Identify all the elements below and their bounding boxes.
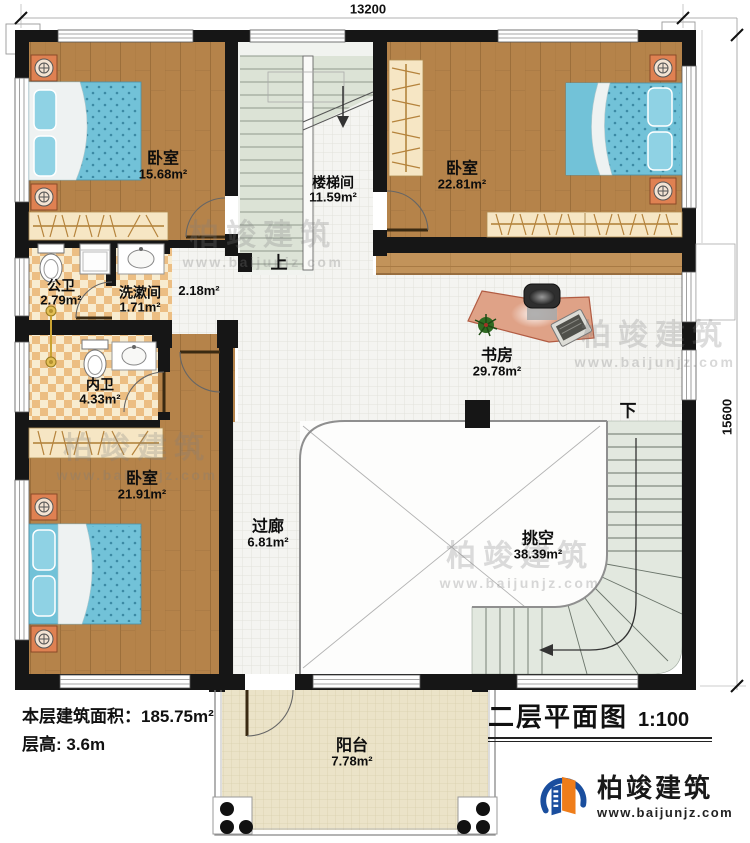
- window: [58, 30, 193, 42]
- floor-area-text: 本层建筑面积：185.75m²: [22, 702, 214, 727]
- room-name: 阳台: [331, 737, 372, 754]
- window: [682, 272, 696, 322]
- room-label-bedroom-top-left: 卧室 15.68m²: [139, 150, 187, 181]
- window: [313, 675, 420, 688]
- brand-logo: 柏竣建筑 www.baijunjz.com: [540, 770, 733, 824]
- window: [15, 480, 29, 640]
- stair-down-label: 下: [620, 397, 637, 422]
- stair-up-label: 上: [271, 249, 288, 274]
- window: [682, 66, 696, 208]
- room-area: 21.91m²: [118, 488, 166, 502]
- window: [60, 675, 190, 688]
- room-name: 洗漱间: [119, 285, 161, 300]
- room-label-balcony: 阳台 7.78m²: [331, 737, 372, 768]
- room-name: 内卫: [79, 377, 120, 392]
- window: [15, 258, 29, 316]
- page-title: 二层平面图: [488, 697, 628, 734]
- room-label-wash-room: 洗漱间 1.71m²: [119, 285, 161, 314]
- room-label-void: 挑空 38.39m²: [514, 530, 562, 561]
- room-area: 2.79m²: [40, 294, 81, 308]
- toilet: [84, 350, 106, 378]
- room-name: 楼梯间: [309, 175, 357, 190]
- title-underline: [488, 741, 712, 742]
- room-area: 38.39m²: [514, 548, 562, 562]
- sink: [128, 250, 154, 268]
- fixtures-wash-room: [118, 244, 164, 274]
- room-area: 6.81m²: [247, 536, 288, 550]
- room-label-hall: 2.18m²: [178, 284, 219, 298]
- window: [250, 30, 345, 42]
- dimension-right: 15600: [720, 399, 735, 435]
- washing-machine: [80, 244, 110, 274]
- floor-study: [238, 275, 682, 421]
- window: [15, 78, 29, 202]
- room-label-stairwell: 楼梯间 11.59m²: [309, 175, 357, 204]
- balcony-door-opening: [245, 674, 295, 690]
- room-name: 公卫: [40, 278, 81, 293]
- brand-name: 柏竣建筑: [597, 775, 733, 801]
- room-area: 4.33m²: [79, 393, 120, 407]
- room-area: 29.78m²: [473, 365, 521, 379]
- exterior-ledge: [696, 244, 735, 320]
- room-label-private-bath: 内卫 4.33m²: [79, 377, 120, 406]
- room-name: 过廊: [247, 518, 288, 535]
- room-label-corridor: 过廊 6.81m²: [247, 518, 288, 549]
- room-area: 7.78m²: [331, 755, 372, 769]
- floor-height-text: 层高: 3.6m: [22, 730, 105, 755]
- room-area: 11.59m²: [309, 191, 357, 205]
- drawing-scale: 1:100: [638, 709, 689, 732]
- room-name: 书房: [473, 347, 521, 364]
- room-label-bedroom-bottom: 卧室 21.91m²: [118, 470, 166, 501]
- floorplan-page: 卧室 15.68m² 楼梯间 11.59m² 卧室 22.81m² 公卫 2.7…: [0, 0, 750, 843]
- room-area: 15.68m²: [139, 168, 187, 182]
- room-name: 卧室: [118, 470, 166, 487]
- room-area: 2.18m²: [178, 284, 219, 298]
- room-area: 1.71m²: [119, 301, 161, 315]
- floor-hall-strip: [376, 253, 682, 275]
- room-name: 卧室: [438, 160, 486, 177]
- dimension-top: 13200: [350, 2, 386, 17]
- window: [682, 350, 696, 400]
- brand-website: www.baijunjz.com: [597, 805, 733, 820]
- sink: [122, 347, 146, 365]
- title-block: 二层平面图 1:100: [488, 697, 712, 742]
- room-area: 22.81m²: [438, 178, 486, 192]
- room-label-public-bath: 公卫 2.79m²: [40, 278, 81, 307]
- brand-logo-icon: [540, 770, 588, 824]
- room-name: 卧室: [139, 150, 187, 167]
- room-label-bedroom-top-right: 卧室 22.81m²: [438, 160, 486, 191]
- room-name: 挑空: [514, 530, 562, 547]
- room-label-study: 书房 29.78m²: [473, 347, 521, 378]
- window: [517, 675, 638, 688]
- window: [15, 342, 29, 412]
- title-underline: [488, 737, 712, 739]
- window: [498, 30, 638, 42]
